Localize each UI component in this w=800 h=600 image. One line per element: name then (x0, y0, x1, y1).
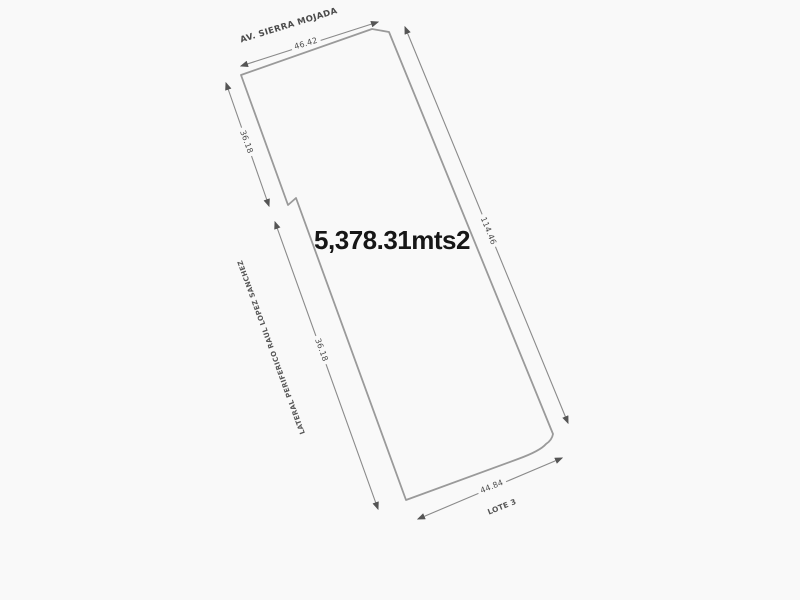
plot-drawing (0, 0, 800, 600)
lot-area-label: 5,378.31mts2 (314, 227, 470, 253)
dim-line-lower-left (275, 222, 378, 509)
lot-boundary-outline (241, 29, 553, 500)
dimension-lines (226, 22, 568, 519)
survey-plot-diagram: AV. SIERRA MOJADA 46.42 36.18 LATERAL PE… (0, 0, 800, 600)
